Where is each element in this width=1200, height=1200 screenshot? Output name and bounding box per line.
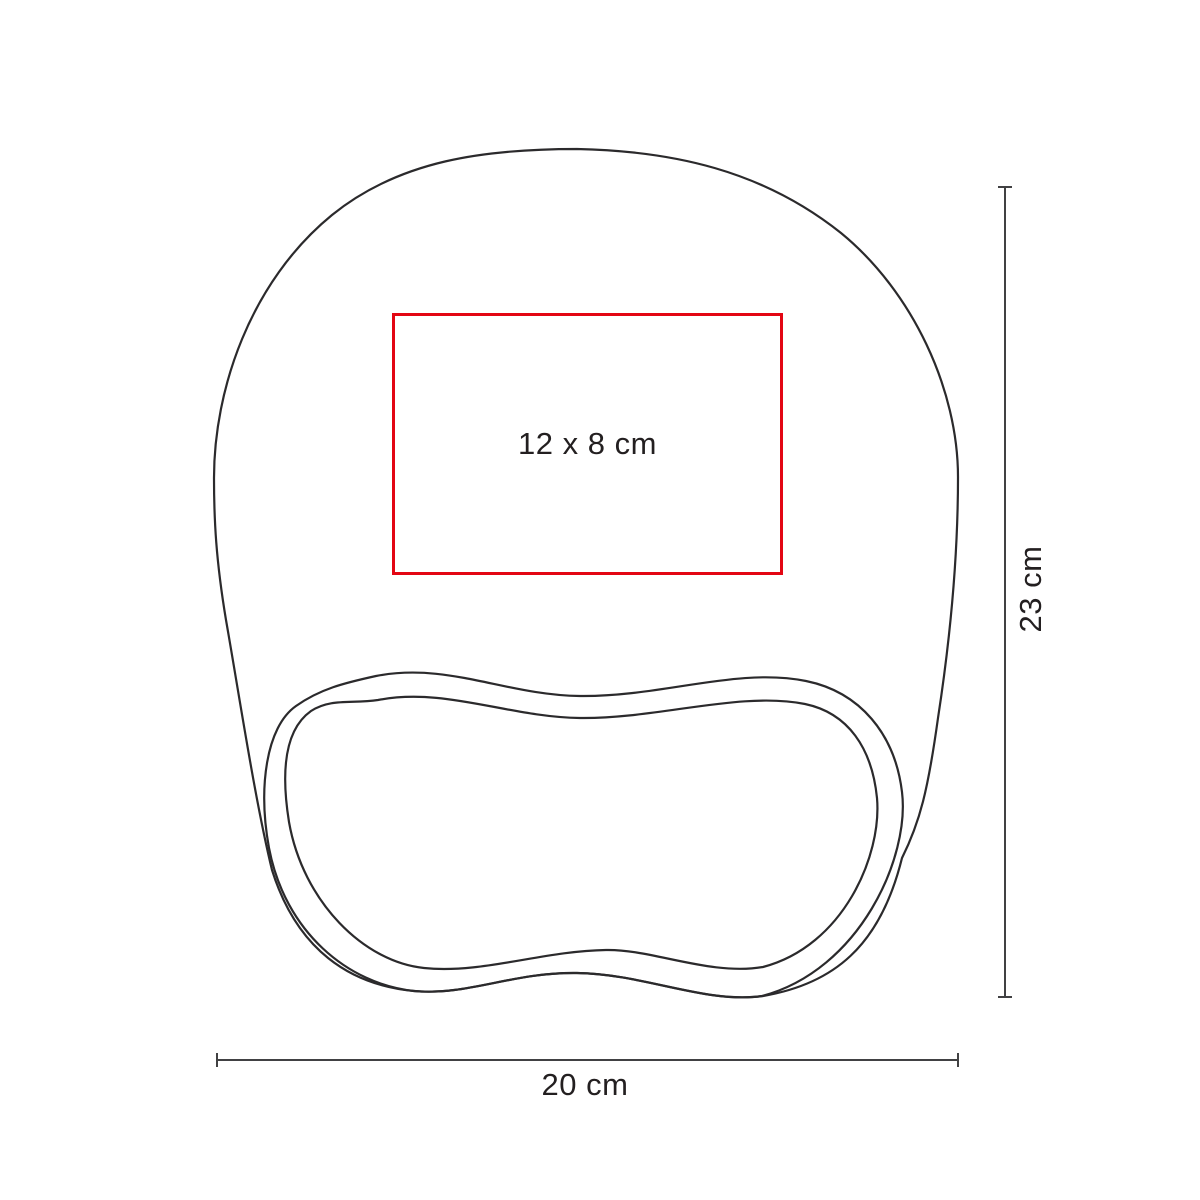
height-dimension-line — [998, 187, 1012, 997]
wrist-rest-inner-outline — [285, 697, 877, 969]
print-area-box: 12 x 8 cm — [392, 313, 783, 575]
wrist-rest-outer-outline — [264, 673, 903, 998]
width-dimension-label: 20 cm — [542, 1067, 629, 1103]
print-area-size-label: 12 x 8 cm — [518, 426, 657, 462]
product-dimension-diagram: 12 x 8 cm 23 cm 20 cm — [0, 0, 1200, 1200]
height-dimension-label: 23 cm — [1013, 546, 1049, 633]
width-dimension-line — [217, 1053, 958, 1067]
